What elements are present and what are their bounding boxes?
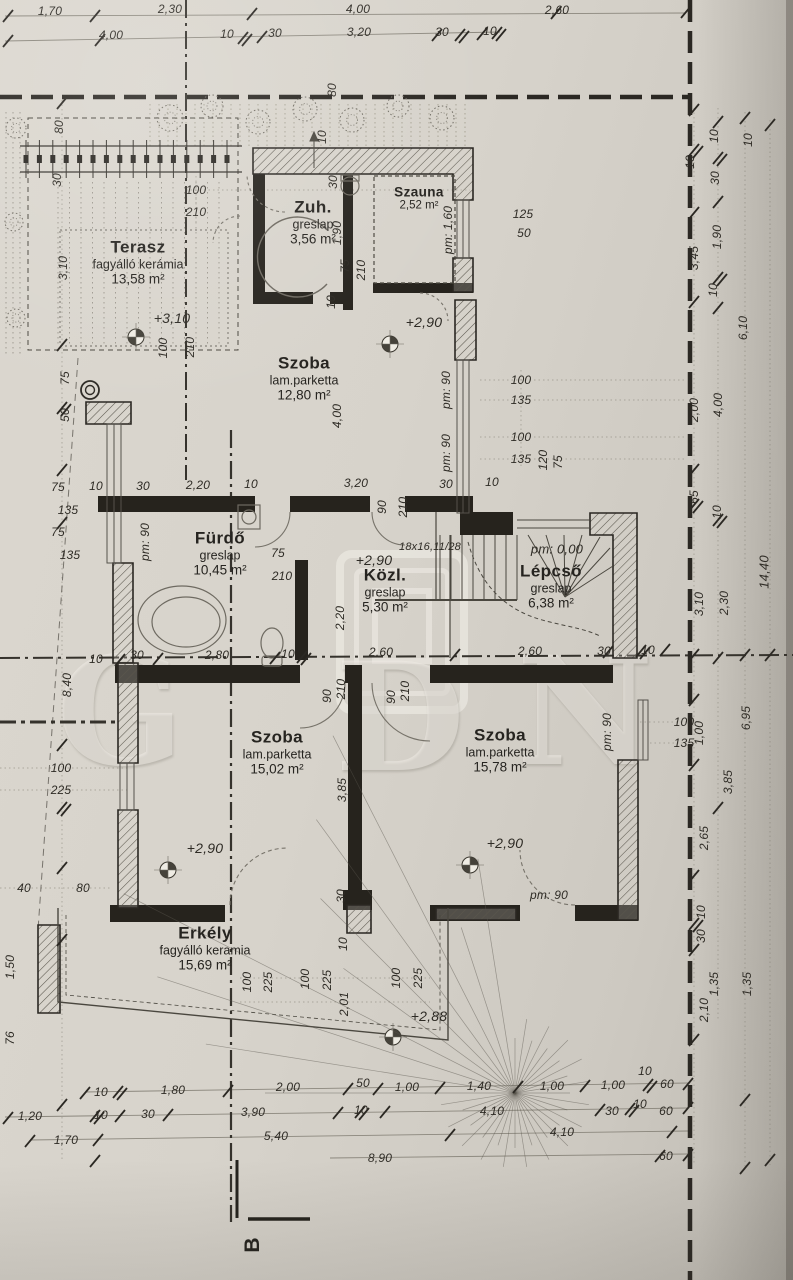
dim-label: 50 (517, 226, 531, 240)
dim-label: 100 (298, 969, 312, 990)
dim-label: 2,60 (518, 644, 542, 658)
dim-label: 75 (51, 480, 65, 494)
dim-label: 65 (687, 490, 701, 504)
dim-label: 100 (156, 338, 170, 359)
dim-label: 5,40 (264, 1129, 288, 1143)
dim-label: 1,35 (707, 972, 721, 996)
dim-label: 10 (281, 647, 295, 661)
dim-label: 210 (398, 681, 412, 702)
dim-label: 1,00 (395, 1080, 419, 1094)
dim-label: 225 (51, 783, 72, 797)
room-label-szoba: Szobalam.parketta15,02 m² (243, 728, 312, 777)
dim-label: 75 (338, 259, 352, 273)
dim-label: 3,20 (347, 25, 371, 39)
dim-label: 10 (694, 905, 708, 919)
dim-label: 6,95 (739, 706, 753, 730)
level-label: +2,90 (406, 314, 442, 330)
dim-label: 10 (315, 130, 329, 144)
room-label-szoba: Szobalam.parketta12,80 m² (270, 354, 339, 403)
dim-label: 10 (683, 155, 697, 169)
dim-label: 10 (354, 1103, 368, 1117)
dim-label: 80 (76, 881, 90, 895)
dim-label: 1,50 (3, 955, 17, 979)
dim-label: 10 (633, 1097, 647, 1111)
dim-label: 135 (511, 452, 532, 466)
dim-label: 10 (324, 295, 338, 309)
dim-label: 30 (130, 648, 144, 662)
dim-label: 2,60 (545, 3, 569, 17)
dim-label: 135 (60, 548, 81, 562)
dim-label: 10 (336, 937, 350, 951)
pm-label: pm: 1,60 (441, 206, 455, 254)
room-label-zuh: Zuh.greslap3,56 m² (290, 198, 336, 247)
dim-label: 40 (17, 881, 31, 895)
dim-label: 2,80 (205, 648, 229, 662)
room-label-terasz: Teraszfagyálló kerámia13,58 m² (92, 238, 183, 287)
dim-label: 1,90 (710, 225, 724, 249)
dim-label: 1,40 (467, 1079, 491, 1093)
pm-label: pm: 90 (600, 713, 614, 751)
dim-label: 3,10 (56, 256, 70, 280)
dim-label: 225 (411, 968, 425, 989)
section-marker-label: B (241, 1237, 265, 1252)
dim-label: 10 (741, 133, 755, 147)
dim-label: 90 (384, 690, 398, 704)
dim-label: 60 (660, 1077, 674, 1091)
dim-label: 100 (240, 972, 254, 993)
dim-label: 50 (58, 408, 72, 422)
dim-label: 1,00 (601, 1078, 625, 1092)
dim-label: 2,30 (158, 2, 182, 16)
dim-label: 10 (94, 1108, 108, 1122)
level-label: +2,90 (487, 835, 523, 851)
dim-label: 3,90 (241, 1105, 265, 1119)
dim-label: 30 (141, 1107, 155, 1121)
dim-label: 30 (326, 175, 340, 189)
pm-label: pm: 90 (138, 523, 152, 561)
dim-label: 10 (485, 475, 499, 489)
dim-label: 76 (3, 1031, 17, 1045)
dim-label: 75 (58, 371, 72, 385)
dim-label: 100 (511, 430, 532, 444)
dim-label: 10 (244, 477, 258, 491)
pm-label: pm: 90 (530, 888, 568, 902)
dim-label: 8,90 (368, 1151, 392, 1165)
room-label-lpcs: Lépcsőgreslap6,38 m² (520, 562, 582, 611)
dim-label: 4,00 (711, 393, 725, 417)
dim-label: 3,45 (687, 246, 701, 270)
dim-label: 30 (605, 1104, 619, 1118)
dim-label: 2,00 (276, 1080, 300, 1094)
dim-label: 90 (375, 500, 389, 514)
room-label-erkly: Erkélyfagyálló keramia15,69 m² (159, 924, 250, 973)
dim-label: 100 (389, 968, 403, 989)
dim-label: 210 (183, 337, 197, 358)
dim-label: 10 (641, 643, 655, 657)
pm-label: pm: 90 (439, 371, 453, 409)
dim-label: 4,00 (99, 28, 123, 42)
dim-label: 8,40 (60, 673, 74, 697)
dim-label: 3,10 (692, 592, 706, 616)
dim-label: 3,20 (344, 476, 368, 490)
dim-label: 30 (50, 173, 64, 187)
dim-label: 10 (706, 283, 720, 297)
dim-label: 210 (334, 679, 348, 700)
dim-label: 30 (435, 25, 449, 39)
dim-label: 10 (710, 505, 724, 519)
level-label: +2,90 (187, 840, 223, 856)
dim-label: 1,20 (18, 1109, 42, 1123)
dim-label: 210 (186, 205, 207, 219)
room-label-szoba: Szobalam.parketta15,78 m² (466, 726, 535, 775)
dim-label: 225 (261, 972, 275, 993)
dim-label: 3,85 (335, 778, 349, 802)
pm-label: pm: 0,00 (531, 542, 583, 557)
dim-label: 50 (356, 1076, 370, 1090)
dim-label: 30 (136, 479, 150, 493)
dim-label: 210 (396, 497, 410, 518)
dim-label: 75 (271, 546, 285, 560)
dim-label: 100 (51, 761, 72, 775)
dim-label: 135 (58, 503, 79, 517)
dim-label: 2,00 (687, 398, 701, 422)
dim-label: 60 (659, 1149, 673, 1163)
level-label: +3,10 (154, 310, 190, 326)
dim-label: 3,85 (721, 770, 735, 794)
dim-label: 1,00 (692, 721, 706, 745)
dim-label: 10 (89, 652, 103, 666)
dim-label: 60 (659, 1104, 673, 1118)
dim-label: 75 (551, 455, 565, 469)
dim-label: 10 (638, 1064, 652, 1078)
dim-label: 80 (325, 83, 339, 97)
dim-label: 135 (511, 393, 532, 407)
dim-label: 10 (483, 24, 497, 38)
dim-label: 80 (52, 120, 66, 134)
dim-label: 2,20 (186, 478, 210, 492)
level-label: +2,88 (411, 1008, 447, 1024)
dim-label: 1,70 (54, 1133, 78, 1147)
dim-label: 10 (89, 479, 103, 493)
dim-label: 100 (511, 373, 532, 387)
dim-label: 4,10 (550, 1125, 574, 1139)
dim-label: 210 (272, 569, 293, 583)
dim-label: 2,60 (369, 645, 393, 659)
dim-label: 90 (320, 689, 334, 703)
stair-spec-label: 18x16,11/28 (399, 541, 461, 553)
dim-label: 2,30 (717, 591, 731, 615)
dim-label: 4,10 (480, 1104, 504, 1118)
pm-label: pm: 90 (439, 434, 453, 472)
dim-label: 210 (354, 260, 368, 281)
room-label-frd: Fürdőgreslap10,45 m² (193, 529, 246, 578)
dim-label: 2,10 (697, 998, 711, 1022)
dim-label: 1,80 (161, 1083, 185, 1097)
dim-label: 225 (320, 970, 334, 991)
floorplan-page: GDN (0, 0, 793, 1280)
dim-label: 2,65 (697, 826, 711, 850)
room-label-szauna: Szauna2,52 m² (394, 185, 444, 212)
dim-label: 10 (94, 1085, 108, 1099)
dim-label: 14,40 (757, 555, 772, 589)
annotation-layer: 1,702,304,002,604,0010303,20301080108030… (0, 0, 793, 1280)
dim-label: 30 (694, 929, 708, 943)
room-label-kzl: Közl.greslap5,30 m² (362, 566, 408, 615)
dim-label: 1,00 (540, 1079, 564, 1093)
dim-label: 75 (51, 525, 65, 539)
dim-label: 10 (220, 27, 234, 41)
dim-label: 1,35 (740, 972, 754, 996)
dim-label: 30 (708, 171, 722, 185)
dim-label: 30 (334, 889, 348, 903)
dim-label: 30 (268, 26, 282, 40)
dim-label: 2,20 (333, 606, 347, 630)
dim-label: 120 (536, 450, 550, 471)
dim-label: 100 (186, 183, 207, 197)
dim-label: 1,70 (38, 4, 62, 18)
dim-label: 10 (707, 129, 721, 143)
dim-label: 6,10 (736, 316, 750, 340)
dim-label: 4,00 (330, 404, 344, 428)
dim-label: 30 (597, 644, 611, 658)
dim-label: 30 (439, 477, 453, 491)
dim-label: 4,00 (346, 2, 370, 16)
dim-label: 125 (513, 207, 534, 221)
dim-label: 2,01 (337, 992, 351, 1016)
